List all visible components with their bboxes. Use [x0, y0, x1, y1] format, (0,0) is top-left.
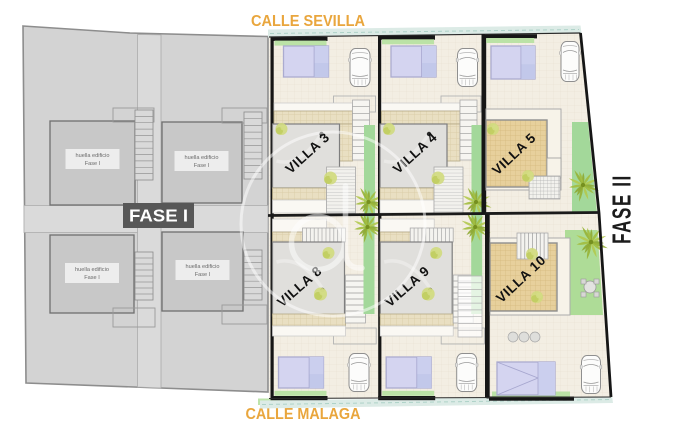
svg-text:huella edificio: huella edificio [76, 153, 110, 159]
svg-text:FASE I: FASE I [129, 206, 188, 226]
svg-text:huella edificio: huella edificio [185, 155, 219, 161]
svg-text:huella edificio: huella edificio [186, 264, 220, 270]
svg-text:Fase I: Fase I [85, 161, 101, 167]
svg-text:CALLE SEVILLA: CALLE SEVILLA [251, 13, 365, 30]
svg-text:Fase I: Fase I [84, 275, 100, 281]
svg-text:Fase I: Fase I [195, 272, 211, 278]
svg-text:Fase I: Fase I [194, 163, 210, 169]
svg-text:FASE II: FASE II [607, 174, 636, 244]
svg-text:CALLE MALAGA: CALLE MALAGA [246, 406, 361, 423]
svg-text:huella edificio: huella edificio [75, 267, 109, 273]
